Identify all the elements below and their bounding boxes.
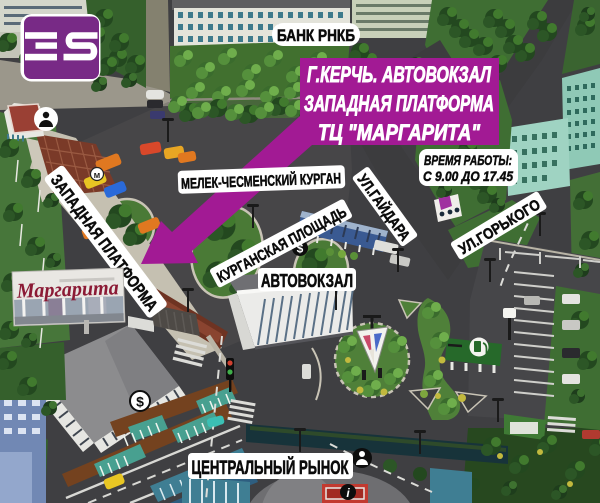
svg-text:ВРЕМЯ РАБОТЫ:: ВРЕМЯ РАБОТЫ:: [424, 153, 512, 168]
svg-text:Г.КЕРЧЬ. АВТОВОКЗАЛ: Г.КЕРЧЬ. АВТОВОКЗАЛ: [307, 62, 492, 87]
svg-text:ЦЕНТРАЛЬНЫЙ РЫНОК: ЦЕНТРАЛЬНЫЙ РЫНОК: [192, 457, 349, 479]
svg-text:БАНК РНКБ: БАНК РНКБ: [277, 26, 355, 45]
svg-text:ТЦ "МАРГАРИТА": ТЦ "МАРГАРИТА": [318, 120, 480, 145]
svg-text:м: м: [94, 170, 101, 180]
svg-text:ЗАПАДНАЯ ПЛАТФОРМА: ЗАПАДНАЯ ПЛАТФОРМА: [304, 91, 494, 116]
svg-text:АВТОВОКЗАЛ: АВТОВОКЗАЛ: [261, 271, 353, 291]
svg-text:Маргарита: Маргарита: [15, 275, 119, 303]
svg-text:$: $: [136, 394, 144, 410]
svg-text:С 9.00 ДО 17.45: С 9.00 ДО 17.45: [423, 169, 513, 184]
